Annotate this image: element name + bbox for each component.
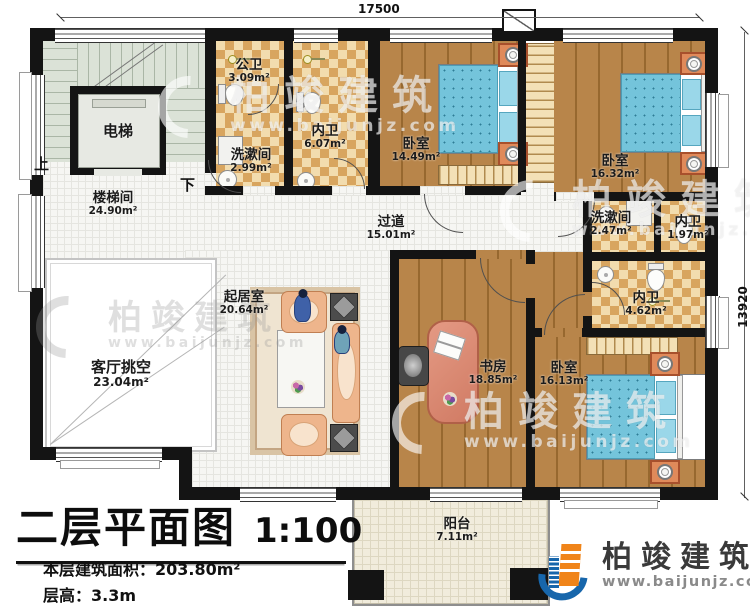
floor-area-line: 本层建筑面积：203.80m² xyxy=(43,556,240,580)
window xyxy=(55,28,205,43)
coffee-table xyxy=(277,330,325,408)
floor-height-line: 层高：3.3m xyxy=(43,582,136,606)
door-opening xyxy=(526,264,535,298)
bed-headboard xyxy=(677,375,683,459)
door-opening xyxy=(243,186,275,195)
stair-down-label: 下 xyxy=(180,174,195,195)
wall xyxy=(654,196,661,252)
plan-title: 二层平面图 xyxy=(16,494,236,555)
bed-pillow xyxy=(682,115,701,146)
balcony-post xyxy=(348,570,384,600)
window xyxy=(563,28,673,43)
balcony-door-window xyxy=(430,487,522,502)
chimney xyxy=(502,9,536,33)
wall xyxy=(583,252,718,261)
room-label-study: 书房 18.85m² xyxy=(469,360,518,386)
room-label-elevator: 电梯 xyxy=(103,123,133,140)
wall xyxy=(518,41,526,192)
window-sill xyxy=(564,500,658,509)
wall xyxy=(368,41,380,195)
floor-area-value: 203.80m² xyxy=(155,560,240,579)
room-label-hallway: 过道 15.01m² xyxy=(367,215,416,241)
nightstand xyxy=(650,352,680,376)
bed-mattress xyxy=(621,74,681,152)
room-label-washroom-2: 洗漱间 2.47m² xyxy=(590,211,631,237)
end-table xyxy=(330,293,358,321)
room-label-stair-hall: 楼梯间 24.90m² xyxy=(89,191,138,217)
room-label-void: 客厅挑空 23.04m² xyxy=(91,359,151,389)
room-label-inner-bath-3: 内卫 4.62m² xyxy=(625,291,666,317)
nightstand xyxy=(680,52,708,75)
dimension-top-value: 17500 xyxy=(358,2,400,16)
flower-icon xyxy=(443,392,457,406)
company-name: 柏竣建筑 xyxy=(602,542,750,574)
bed-pillow xyxy=(682,79,701,110)
person-figure xyxy=(334,330,350,354)
desk-chair xyxy=(398,346,429,386)
company-website: www.baijunjz.com xyxy=(602,574,750,590)
wall xyxy=(284,41,293,195)
wall xyxy=(390,250,399,487)
stair-up-label: 上 xyxy=(34,153,49,174)
nightstand xyxy=(650,460,680,484)
title-block: 二层平面图 1:100 xyxy=(16,494,346,564)
sink-icon xyxy=(597,266,614,283)
bed xyxy=(620,73,707,153)
company-logo: 柏竣建筑 www.baijunjz.com xyxy=(538,542,750,598)
window-sill xyxy=(19,72,32,180)
room-label-bedroom-3: 卧室 16.13m² xyxy=(540,361,589,387)
room-label-living-room: 起居室 20.64m² xyxy=(220,290,269,316)
room-label-balcony: 阳台 7.11m² xyxy=(436,517,477,543)
elevator-panel xyxy=(92,99,146,108)
company-logo-icon xyxy=(538,542,594,598)
floor-area-label: 本层建筑面积： xyxy=(43,560,155,579)
bed-mattress xyxy=(439,65,498,153)
end-table xyxy=(330,424,358,452)
bed-pillow xyxy=(499,71,518,106)
dimension-right-value: 13920 xyxy=(736,286,750,328)
person-figure xyxy=(294,294,311,322)
window xyxy=(294,28,338,43)
light-icon xyxy=(303,55,312,64)
armchair xyxy=(281,414,327,456)
window xyxy=(390,28,492,43)
wall xyxy=(205,41,216,173)
window-sill xyxy=(718,94,729,168)
room-label-bedroom-1: 卧室 14.49m² xyxy=(392,137,441,163)
stair-flight-right xyxy=(162,88,206,162)
bed-pillow xyxy=(656,419,676,453)
floor-height-label: 层高： xyxy=(43,586,91,605)
window-sill xyxy=(18,194,32,292)
dimension-line-top xyxy=(60,17,700,18)
window-sill xyxy=(718,297,729,349)
floor-plan-canvas: 柏竣建筑 www.baijunjz.com 柏竣建筑 www.baijunjz.… xyxy=(0,0,750,613)
bed-mattress xyxy=(587,375,655,459)
stair-flight-top xyxy=(77,41,206,88)
wardrobe xyxy=(438,165,526,185)
room-label-inner-bath-2: 内卫 1.97m² xyxy=(667,215,708,241)
flower-icon xyxy=(291,380,305,394)
room-label-public-bath: 公卫 3.09m² xyxy=(228,58,269,84)
dimension-line-right xyxy=(744,32,745,498)
bed xyxy=(438,64,523,154)
bed-pillow xyxy=(656,381,676,415)
nightstand xyxy=(680,152,708,175)
elevator-door-opening xyxy=(94,169,142,176)
room-label-washroom-1: 洗漱间 2.99m² xyxy=(230,148,271,174)
window xyxy=(30,196,45,288)
window-sill xyxy=(60,460,160,469)
room-label-bedroom-2: 卧室 16.32m² xyxy=(591,154,640,180)
room-label-inner-bath-1: 内卫 6.07m² xyxy=(304,124,345,150)
plan-scale: 1:100 xyxy=(254,511,362,551)
double-height-void xyxy=(45,258,217,452)
closet xyxy=(524,43,556,183)
floor-height-value: 3.3m xyxy=(91,586,136,605)
bed xyxy=(586,374,707,460)
